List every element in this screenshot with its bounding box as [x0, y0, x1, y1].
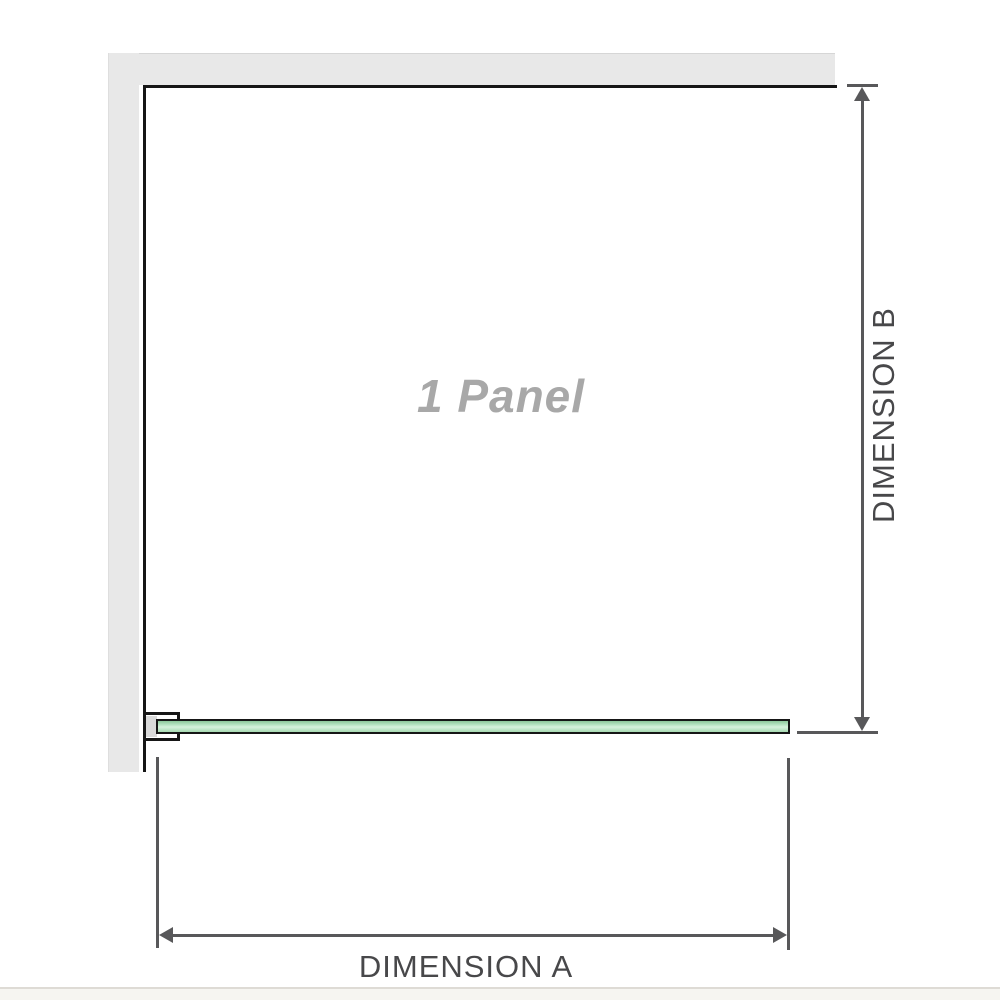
dimension-b-arrow-up-icon [854, 87, 870, 101]
dimension-b-arrow-down-icon [854, 717, 870, 731]
dimension-a-extension-left [156, 757, 159, 948]
dimension-a-extension-right [787, 758, 790, 950]
glass-panel-plan-view [156, 719, 790, 734]
panel-outline-top-edge [143, 85, 837, 88]
dimension-a-label: DIMENSION A [359, 949, 573, 985]
dimension-b-label: DIMENSION B [866, 307, 902, 523]
dimension-a-arrow-right-icon [773, 927, 787, 943]
dimension-a-line [170, 934, 780, 937]
wall-top [108, 53, 835, 85]
page-footer-area [0, 989, 1000, 1000]
dimension-b-line [861, 94, 864, 722]
dimension-b-tick-bottom [797, 731, 878, 734]
dimension-a-arrow-left-icon [159, 927, 173, 943]
panel-label: 1 Panel [417, 369, 585, 423]
wall-left [108, 53, 139, 772]
panel-dimension-diagram: 1 Panel DIMENSION B DIMENSION A [0, 0, 1000, 1000]
panel-outline-left-edge [143, 85, 146, 772]
